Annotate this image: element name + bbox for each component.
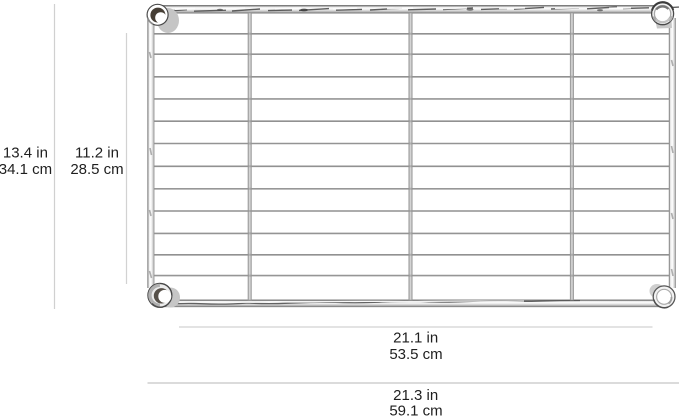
- svg-text:21.3 in: 21.3 in: [393, 387, 438, 404]
- svg-text:53.5 cm: 53.5 cm: [389, 346, 442, 363]
- svg-text:34.1 cm: 34.1 cm: [0, 161, 52, 178]
- svg-text:21.1 in: 21.1 in: [393, 329, 438, 346]
- svg-text:11.2 in: 11.2 in: [75, 145, 119, 162]
- svg-text:13.4 in: 13.4 in: [3, 145, 48, 162]
- svg-text:59.1 cm: 59.1 cm: [389, 402, 442, 416]
- svg-text:28.5 cm: 28.5 cm: [70, 161, 123, 178]
